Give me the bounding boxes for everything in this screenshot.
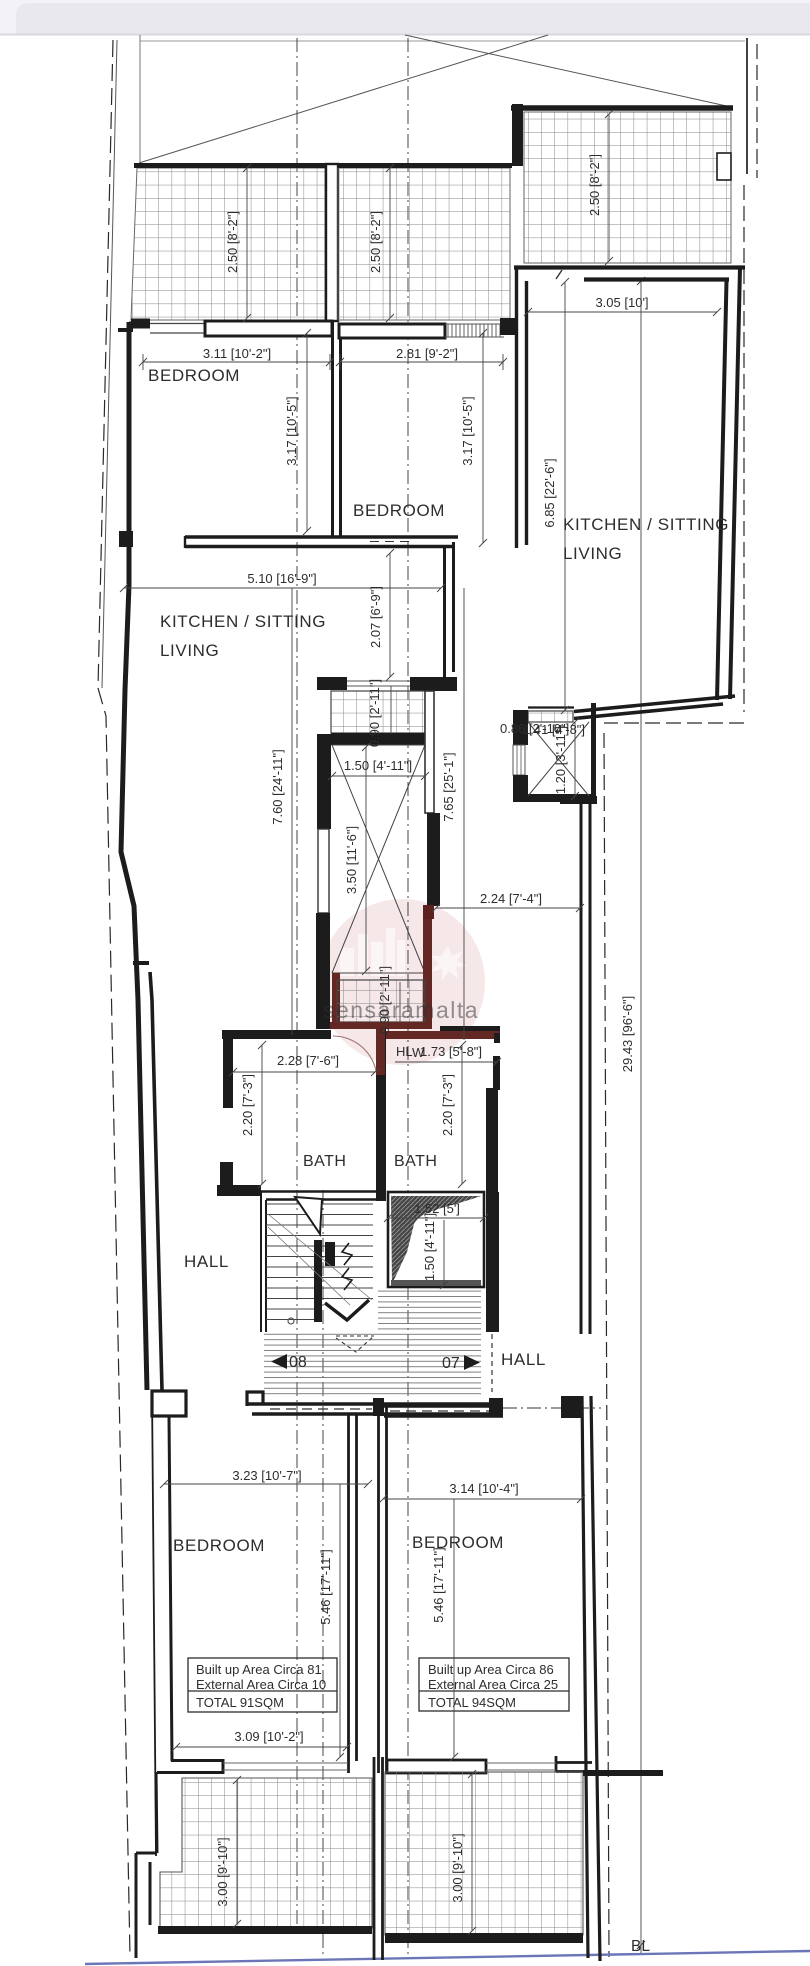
svg-text:LIVING: LIVING xyxy=(160,641,219,660)
svg-text:3.00 [9'-10"]: 3.00 [9'-10"] xyxy=(450,1833,465,1902)
svg-text:Built up Area Circa 86: Built up Area Circa 86 xyxy=(428,1662,554,1677)
svg-text:Built up Area Circa 81: Built up Area Circa 81 xyxy=(196,1662,322,1677)
svg-text:BEDROOM: BEDROOM xyxy=(412,1533,504,1552)
svg-text:KITCHEN / SITTING: KITCHEN / SITTING xyxy=(160,612,326,631)
svg-text:07: 07 xyxy=(442,1355,460,1372)
svg-text:BEDROOM: BEDROOM xyxy=(353,501,445,520)
svg-text:TOTAL 91SQM: TOTAL 91SQM xyxy=(196,1695,284,1710)
svg-text:BEDROOM: BEDROOM xyxy=(148,366,240,385)
svg-text:BATH: BATH xyxy=(394,1153,437,1170)
svg-text:sensaramalta: sensaramalta xyxy=(323,997,479,1023)
svg-text:1.50 [4'-11"]: 1.50 [4'-11"] xyxy=(344,758,412,773)
svg-text:HALL: HALL xyxy=(184,1252,229,1271)
svg-text:7.65 [25'-1"]: 7.65 [25'-1"] xyxy=(441,752,456,821)
svg-text:3.09 [10'-2"]: 3.09 [10'-2"] xyxy=(234,1729,303,1744)
svg-text:BEDROOM: BEDROOM xyxy=(173,1536,265,1555)
svg-text:7.60 [24'-11"]: 7.60 [24'-11"] xyxy=(270,749,285,825)
svg-text:BATH: BATH xyxy=(303,1153,346,1170)
svg-text:2.07 [6'-9"]: 2.07 [6'-9"] xyxy=(368,586,383,648)
svg-text:3.14 [10'-4"]: 3.14 [10'-4"] xyxy=(449,1481,518,1496)
svg-text:TOTAL 94SQM: TOTAL 94SQM xyxy=(428,1695,516,1710)
svg-text:2.50 [8'-2"]: 2.50 [8'-2"] xyxy=(368,211,383,273)
svg-text:3.11 [10'-2"]: 3.11 [10'-2"] xyxy=(203,346,271,361)
svg-text:1.50 [4'-11"]: 1.50 [4'-11"] xyxy=(422,1213,437,1281)
svg-text:6.85 [22'-6"]: 6.85 [22'-6"] xyxy=(542,458,557,527)
svg-text:2.28 [7'-6"]: 2.28 [7'-6"] xyxy=(277,1053,339,1068)
svg-text:2.20 [7'-3"]: 2.20 [7'-3"] xyxy=(440,1074,455,1136)
svg-text:08: 08 xyxy=(289,1354,307,1371)
svg-text:BL: BL xyxy=(631,1938,650,1955)
svg-text:5.10 [16'-9"]: 5.10 [16'-9"] xyxy=(247,571,316,586)
svg-text:3.50 [11'-6"]: 3.50 [11'-6"] xyxy=(344,826,359,894)
svg-text:3.23 [10'-7"]: 3.23 [10'-7"] xyxy=(232,1468,301,1483)
svg-text:29.43 [96'-6"]: 29.43 [96'-6"] xyxy=(620,996,635,1072)
svg-text:5.46 [17'-11"]: 5.46 [17'-11"] xyxy=(318,1549,333,1625)
svg-text:3.17 [10'-5"]: 3.17 [10'-5"] xyxy=(284,396,299,465)
svg-text:2.50 [8'-2"]: 2.50 [8'-2"] xyxy=(225,211,240,273)
svg-text:HALL: HALL xyxy=(501,1350,546,1369)
svg-text:External Area Circa 25: External Area Circa 25 xyxy=(428,1677,558,1692)
svg-text:3.17 [10'-5"]: 3.17 [10'-5"] xyxy=(460,396,475,465)
svg-text:5.46 [17'-11"]: 5.46 [17'-11"] xyxy=(431,1547,446,1623)
svg-text:External Area Circa 10: External Area Circa 10 xyxy=(196,1677,326,1692)
svg-text:HL: HL xyxy=(396,1044,413,1059)
svg-text:2.81 [9'-2"]: 2.81 [9'-2"] xyxy=(396,346,458,361)
svg-text:2.50 [8'-2"]: 2.50 [8'-2"] xyxy=(587,154,602,216)
svg-text:LIVING: LIVING xyxy=(563,544,622,563)
svg-text:3.00 [9'-10"]: 3.00 [9'-10"] xyxy=(215,1837,230,1906)
svg-text:1.73 [5'-8"]: 1.73 [5'-8"] xyxy=(420,1044,482,1059)
svg-text:1.20 [3'-11"]: 1.20 [3'-11"] xyxy=(553,726,568,794)
svg-text:0.90 [2'-11"]: 0.90 [2'-11"] xyxy=(367,679,382,747)
svg-text:2.24 [7'-4"]: 2.24 [7'-4"] xyxy=(480,891,542,906)
svg-text:KITCHEN / SITTING: KITCHEN / SITTING xyxy=(563,515,729,534)
svg-text:1.52 [5']: 1.52 [5'] xyxy=(414,1201,460,1216)
svg-text:3.05 [10']: 3.05 [10'] xyxy=(595,295,648,310)
svg-text:2.20 [7'-3"]: 2.20 [7'-3"] xyxy=(240,1074,255,1136)
